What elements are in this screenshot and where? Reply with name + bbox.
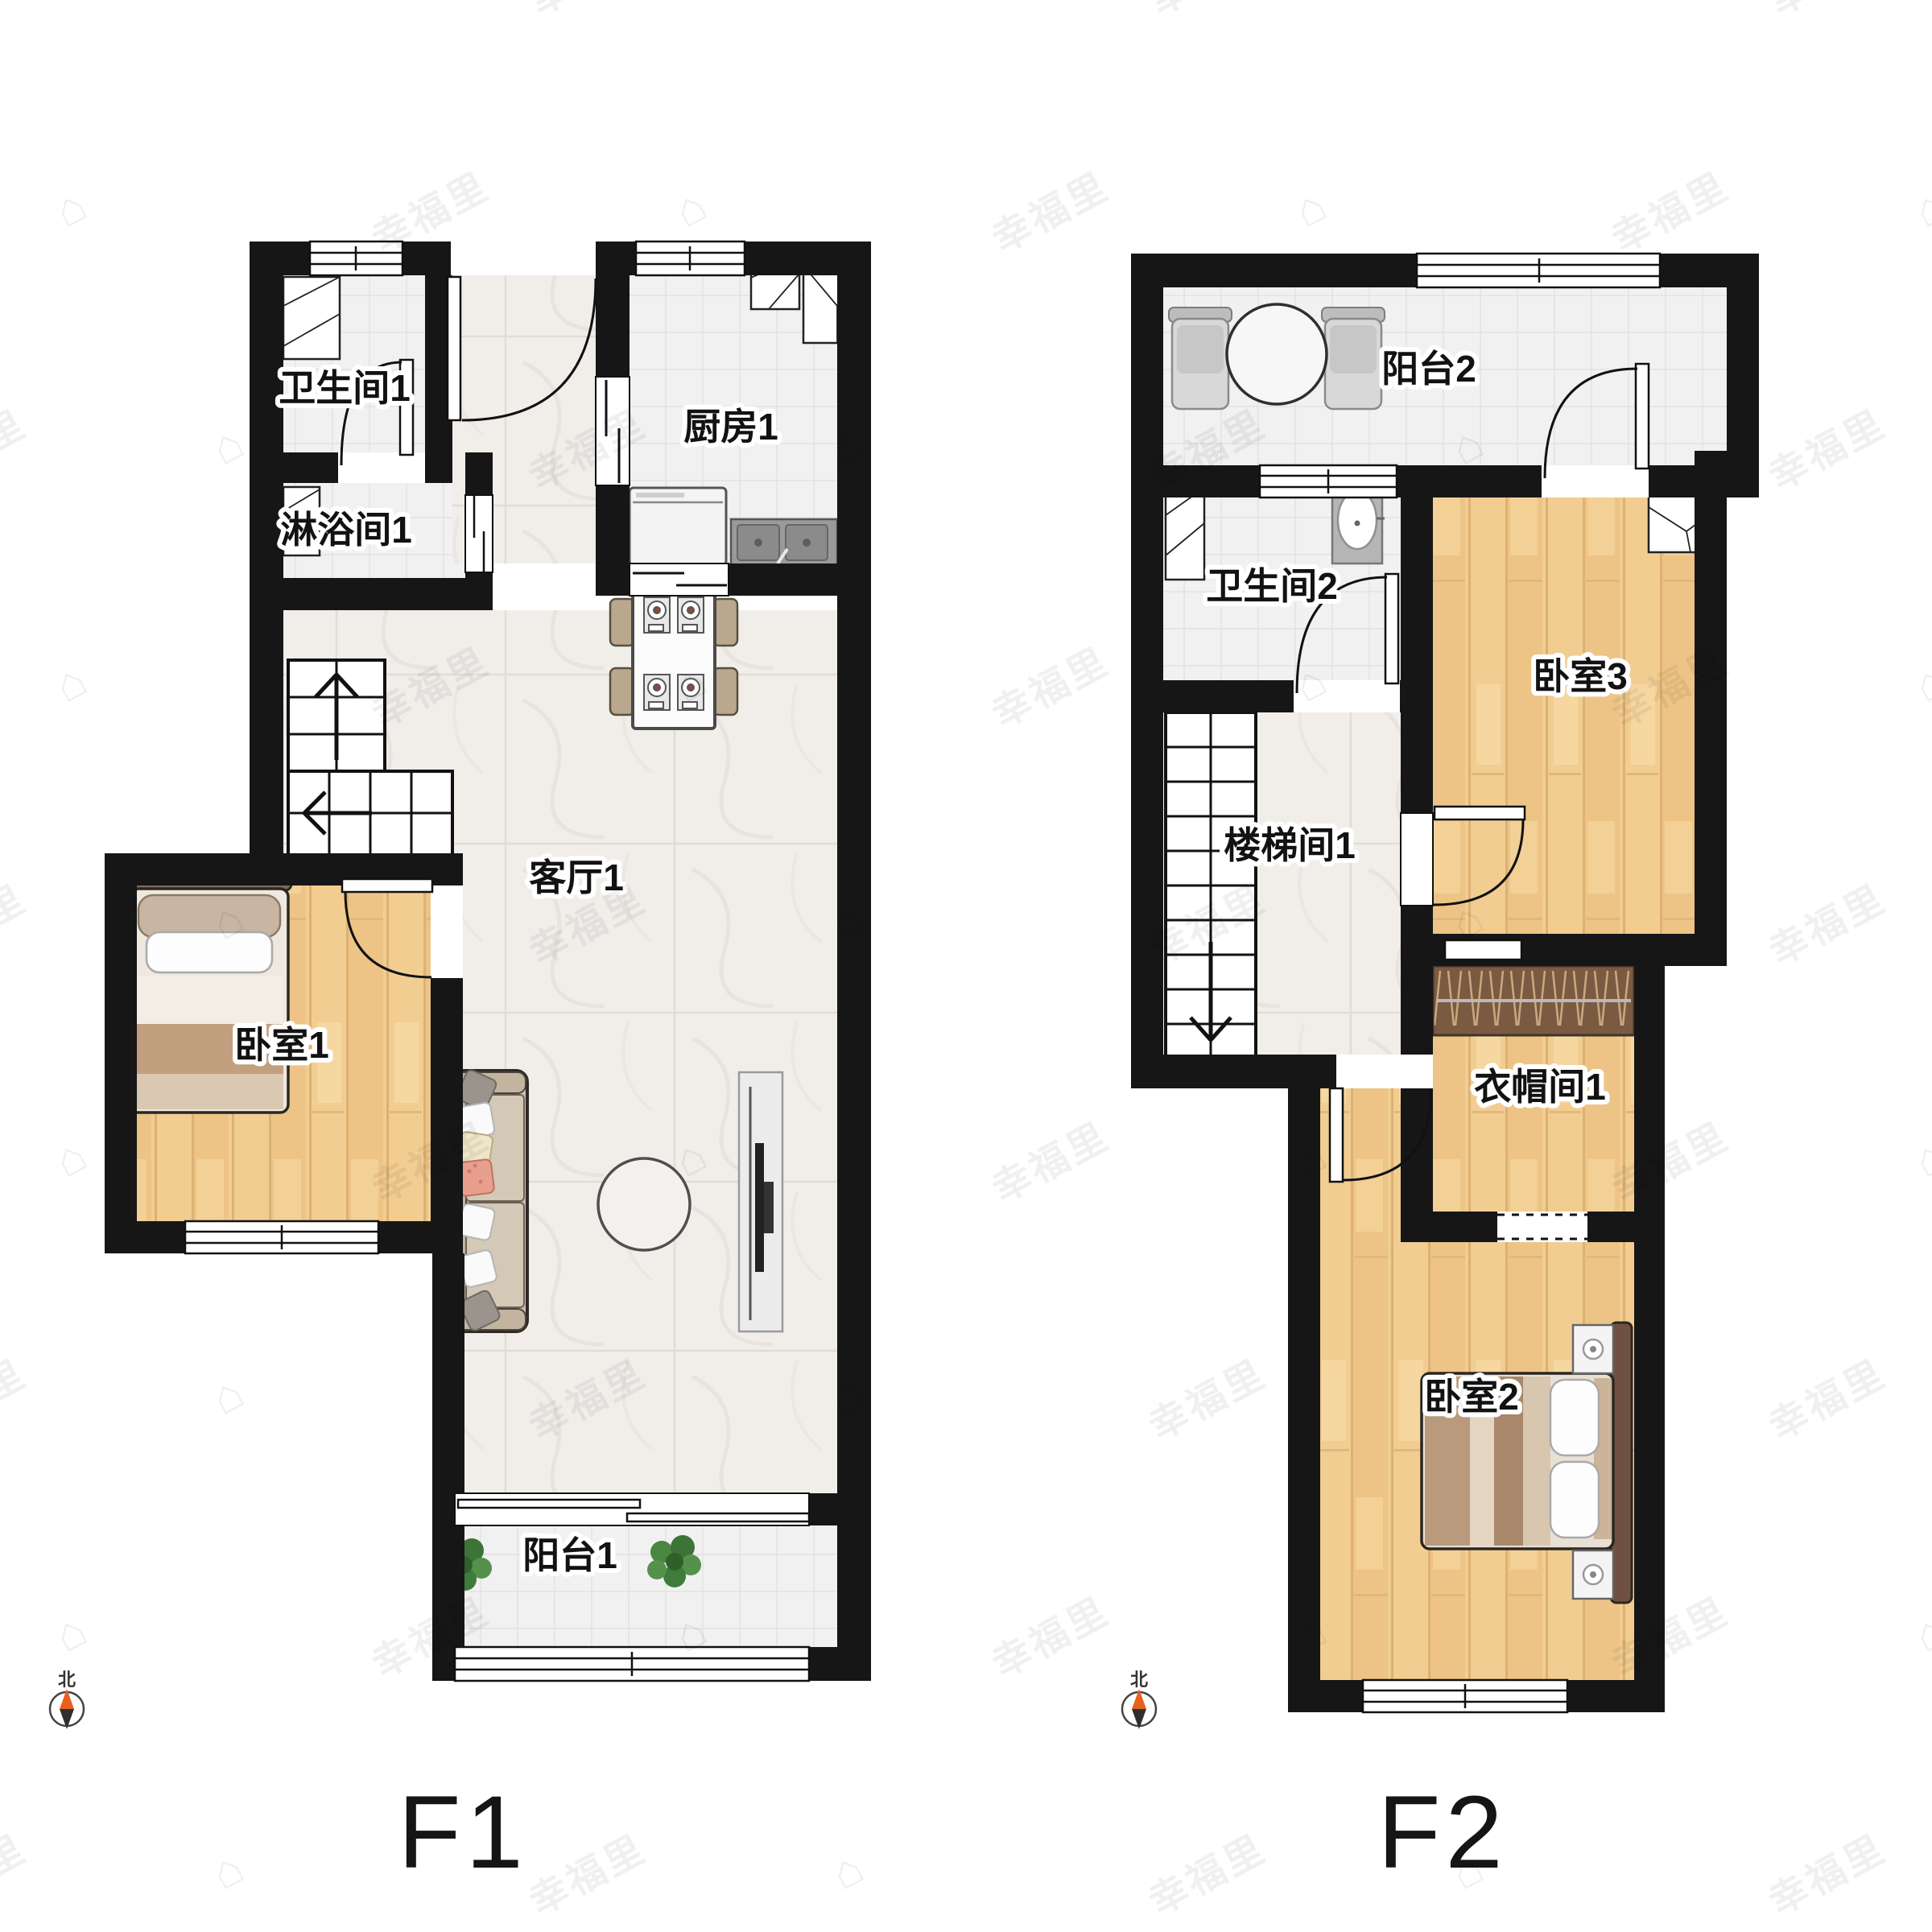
label-shower-1: 淋浴间1 [280,509,412,551]
window-kitchen-1 [636,242,745,275]
kitchen-sink [731,519,837,565]
label-kitchen-1: 厨房1 [683,406,778,448]
floorplan-canvas: 卫生间1 淋浴间1 厨房1 客厅1 卧室1 阳台1 阳台2 卫生间2 卧室3 楼… [0,0,1932,1932]
label-cloakroom-1: 衣帽间1 [1474,1066,1606,1108]
label-living-1: 客厅1 [529,857,624,898]
floorplan-svg: 卫生间1 淋浴间1 厨房1 客厅1 卧室1 阳台1 阳台2 卫生间2 卧室3 楼… [0,0,1932,1932]
label-bedroom-2: 卧室2 [1424,1376,1519,1418]
fridge [630,488,726,565]
floor-title-f2: F2 [1377,1775,1507,1890]
coffee-table [598,1158,690,1250]
floor-title-f1: F1 [398,1775,527,1890]
kitchen-1-pass [630,563,729,596]
balcony-1-sliding-door [455,1493,809,1525]
compass-f2-north-label: 北 [1130,1670,1148,1690]
tv [755,1143,764,1272]
label-stairwell-1: 楼梯间1 [1224,824,1356,866]
compass-f1: 北 [50,1670,84,1729]
balcony-1-floor [464,1525,837,1647]
stairs-f2 [1166,712,1256,1059]
compass-f2: 北 [1122,1670,1156,1729]
bed-1 [127,868,291,1113]
label-bathroom-2: 卫生间2 [1206,565,1338,607]
window-bathroom-1 [310,242,402,275]
label-bedroom-1: 卧室1 [234,1024,329,1066]
cloakroom-rack [1433,966,1634,1035]
bathroom-2-shelf [1166,485,1204,580]
kitchen-1-sliding-door [596,377,630,485]
label-bedroom-3: 卧室3 [1533,655,1628,697]
bathroom-1-shelf [283,277,340,359]
label-bathroom-1: 卫生间1 [279,367,411,409]
nightstand-bottom [1573,1550,1613,1599]
balcony-2-chairs [1169,304,1385,409]
tv-stand [739,1072,782,1331]
window-bedroom-1 [185,1221,378,1253]
window-f2-top [1417,254,1660,287]
label-balcony-2: 阳台2 [1381,348,1476,390]
bedroom-3-floor [1433,497,1695,934]
shower-1-opening [465,495,493,572]
bedroom-3-sill [1445,940,1521,960]
nightstand-top [1573,1325,1613,1373]
window-bathroom-2 [1260,465,1397,497]
compass-f1-north-label: 北 [58,1670,76,1690]
label-balcony-1: 阳台1 [522,1534,617,1576]
cloakroom-dashed-opening [1497,1212,1587,1242]
window-bedroom-2 [1363,1680,1567,1712]
window-balcony-1 [455,1647,809,1681]
balcony-2-table [1227,304,1327,404]
